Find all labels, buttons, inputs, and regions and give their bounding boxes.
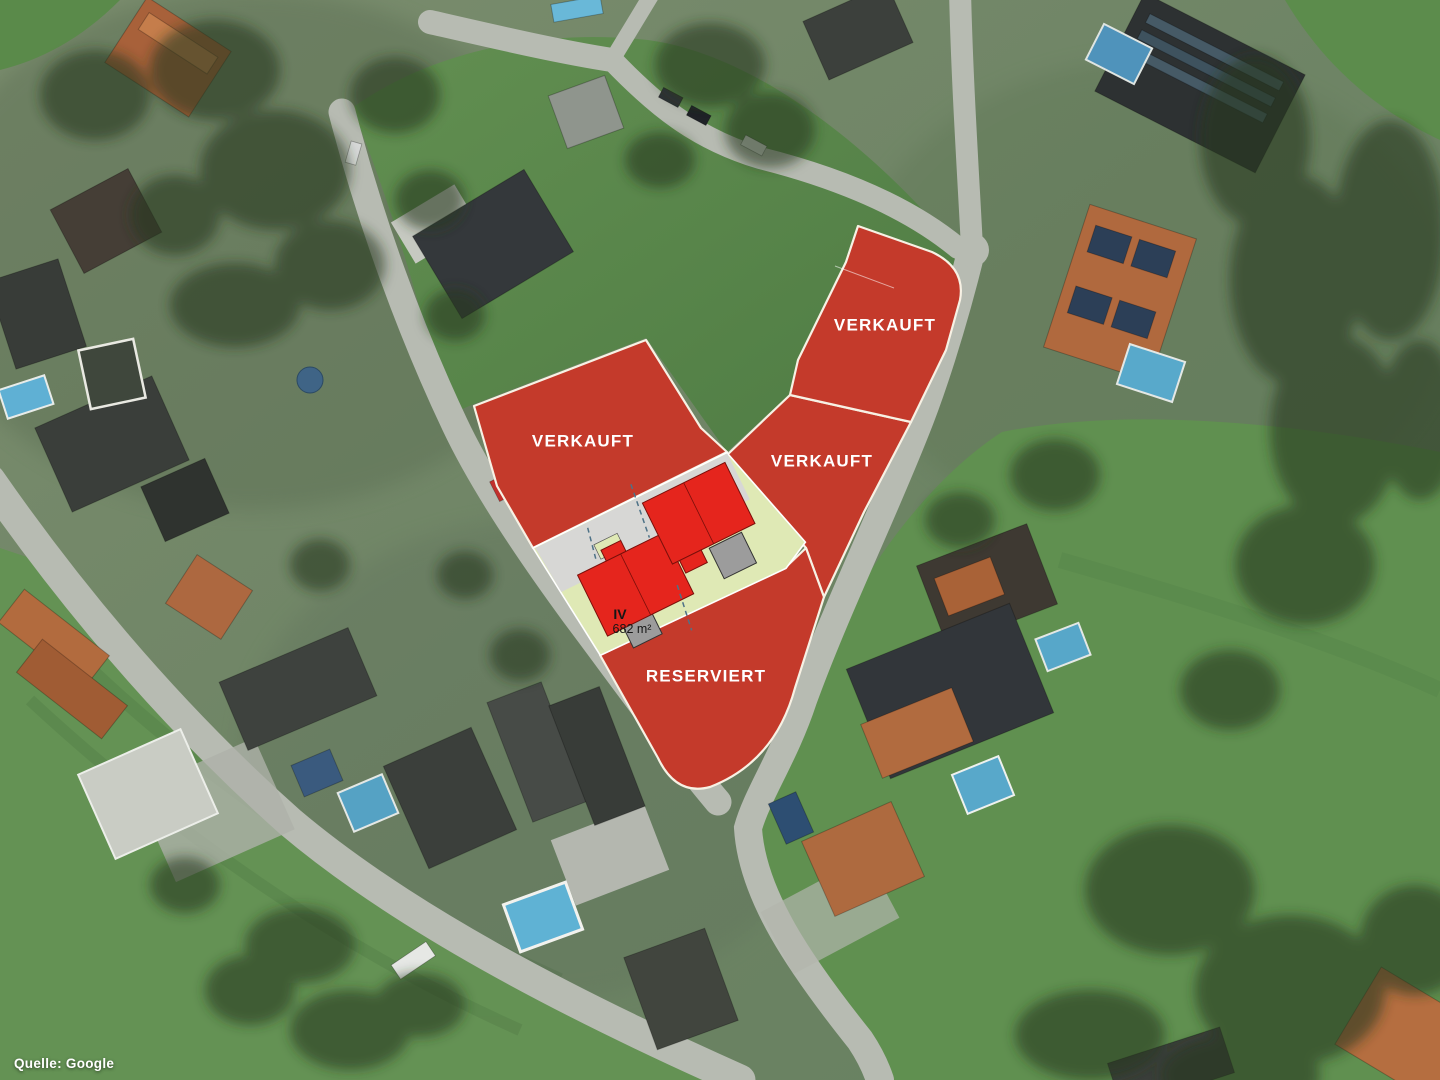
source-attribution: Quelle: Google	[14, 1056, 114, 1071]
plot-iv-area-label: 682 m²	[613, 622, 652, 636]
garden-frame	[78, 339, 145, 409]
plot-iv-number-label: IV	[613, 606, 627, 622]
plot-label-verkauft-northeast: VERKAUFT	[834, 316, 936, 335]
plot-label-verkauft-middle: VERKAUFT	[771, 452, 873, 471]
plot-map-screenshot: VERKAUFT VERKAUFT VERKAUFT RESERVIERT IV…	[0, 0, 1440, 1080]
plot-label-verkauft-west: VERKAUFT	[532, 432, 634, 451]
trampoline	[297, 367, 323, 393]
map-canvas: VERKAUFT VERKAUFT VERKAUFT RESERVIERT IV…	[0, 0, 1440, 1080]
road-north	[960, 0, 972, 248]
plot-label-reserviert: RESERVIERT	[646, 667, 766, 686]
road-junction	[955, 233, 989, 267]
